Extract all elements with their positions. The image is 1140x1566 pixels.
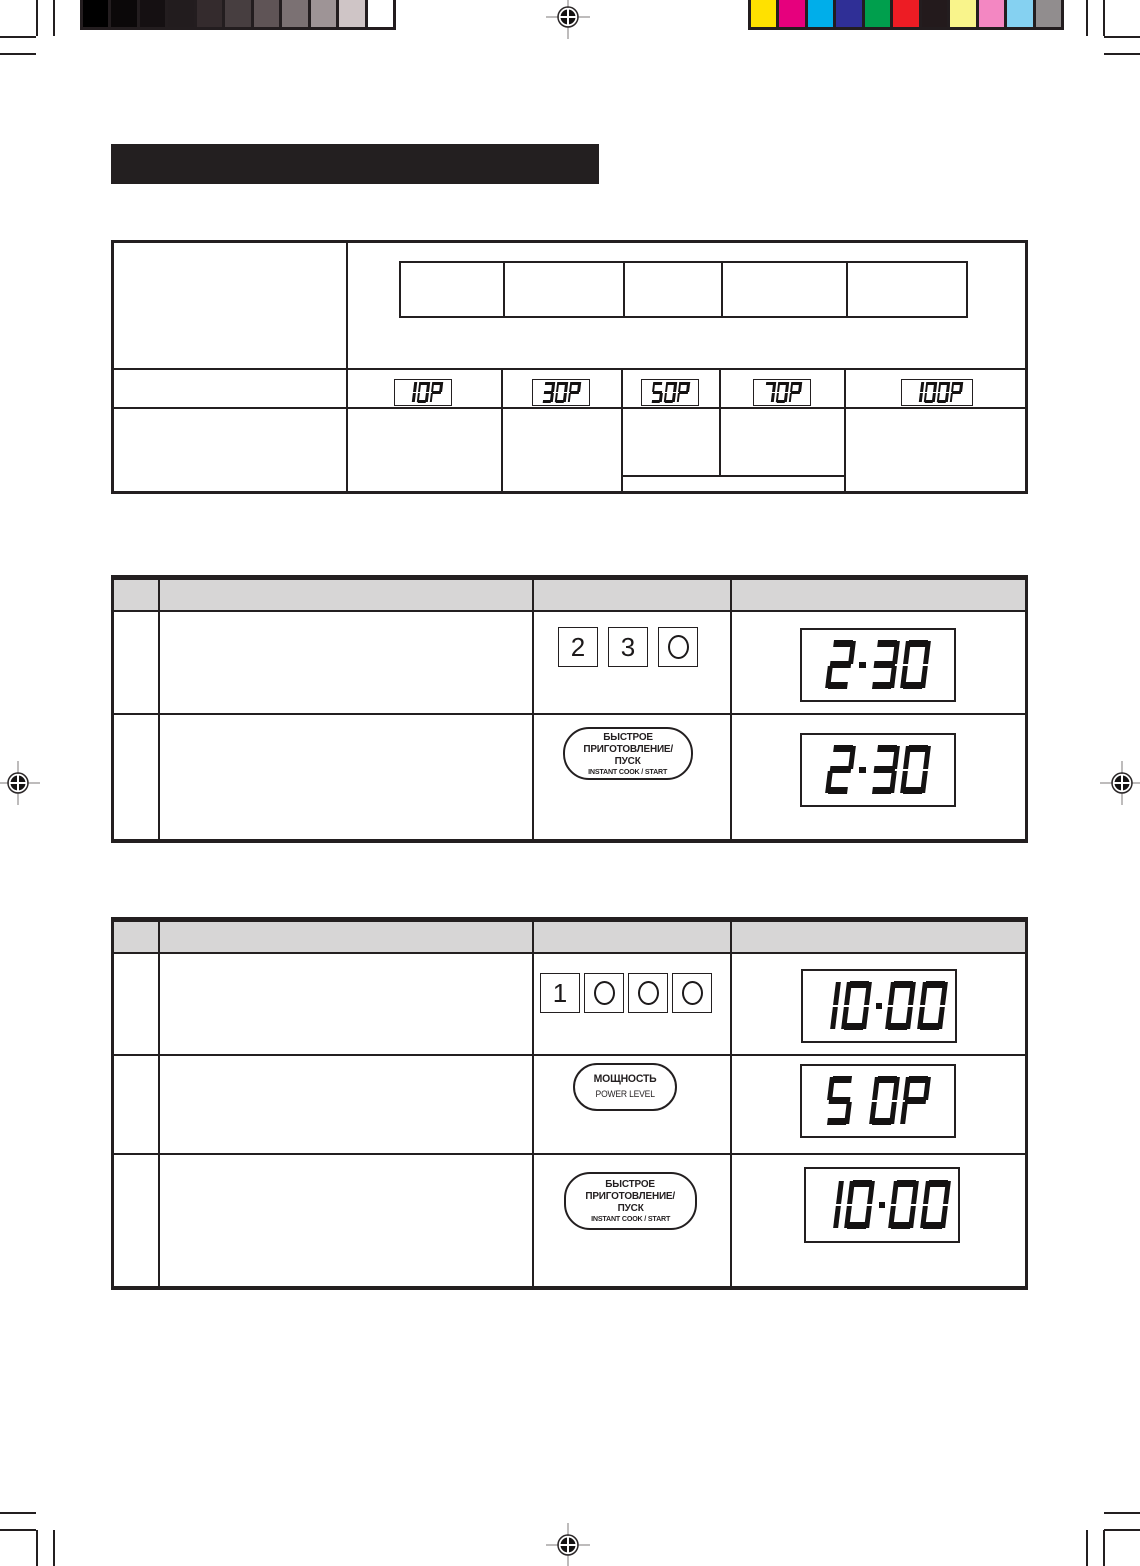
table-header-row bbox=[114, 580, 1025, 612]
led-display bbox=[813, 1180, 951, 1229]
led-display-box bbox=[801, 969, 957, 1043]
led-display-30p bbox=[541, 382, 580, 403]
button-label: ПУСК bbox=[618, 1202, 644, 1214]
calibration-swatch bbox=[979, 0, 1004, 27]
table-line bbox=[621, 368, 623, 491]
led-display-box bbox=[532, 379, 590, 406]
crop-mark bbox=[36, 1530, 38, 1566]
keypad-key-2: 2 bbox=[558, 627, 598, 667]
calibration-swatch bbox=[282, 0, 307, 27]
calibration-swatch bbox=[950, 0, 975, 27]
keypad-key-1: 1 bbox=[540, 973, 580, 1013]
keypad-key-3: 3 bbox=[608, 627, 648, 667]
led-display bbox=[810, 981, 948, 1030]
calibration-swatch bbox=[922, 0, 947, 27]
keypad-key-0 bbox=[628, 973, 668, 1013]
led-display-box bbox=[800, 628, 956, 702]
table-line bbox=[621, 475, 846, 477]
keypad-keys: 1 bbox=[540, 973, 712, 1013]
power-level-button: МОЩНОСТЬ POWER LEVEL bbox=[573, 1063, 677, 1111]
table-line bbox=[721, 263, 723, 316]
table-line bbox=[730, 922, 732, 1286]
zero-circle-glyph bbox=[638, 981, 659, 1005]
led-display-10p bbox=[403, 382, 442, 403]
led-display-box bbox=[753, 379, 811, 406]
button-label: INSTANT COOK / START bbox=[591, 1214, 670, 1224]
led-display-100p bbox=[911, 382, 963, 403]
crop-mark bbox=[1104, 1512, 1140, 1514]
crop-mark bbox=[53, 1530, 55, 1566]
calibration-swatch bbox=[83, 0, 108, 27]
table-line bbox=[158, 922, 160, 1286]
button-label: МОЩНОСТЬ bbox=[594, 1072, 657, 1087]
zero-circle-glyph bbox=[682, 981, 703, 1005]
calibration-swatch bbox=[893, 0, 918, 27]
button-label: ПРИГОТОВЛЕНИЕ/ bbox=[583, 743, 673, 755]
calibration-swatch bbox=[339, 0, 364, 27]
calibration-swatch bbox=[254, 0, 279, 27]
led-display-box bbox=[800, 1064, 956, 1138]
calibration-swatch bbox=[111, 0, 136, 27]
grayscale-calibration-bar bbox=[80, 0, 396, 30]
crop-mark bbox=[1086, 1530, 1088, 1566]
registration-mark-bottom bbox=[546, 1523, 590, 1566]
crop-mark bbox=[53, 0, 55, 36]
calibration-swatch bbox=[808, 0, 833, 27]
led-display bbox=[825, 745, 932, 794]
calibration-swatch bbox=[751, 0, 776, 27]
crop-mark bbox=[0, 53, 36, 55]
registration-mark-right bbox=[1100, 761, 1140, 805]
calibration-swatch bbox=[168, 0, 193, 27]
button-label: POWER LEVEL bbox=[595, 1087, 654, 1102]
table-line bbox=[844, 368, 846, 491]
table-line bbox=[158, 580, 160, 839]
table-line bbox=[114, 1054, 1025, 1056]
calibration-swatch bbox=[1036, 0, 1061, 27]
led-display-box bbox=[641, 379, 699, 406]
calibration-swatch bbox=[140, 0, 165, 27]
crop-mark bbox=[0, 36, 36, 38]
power-level-table bbox=[111, 240, 1028, 494]
keypad-key-0 bbox=[658, 627, 698, 667]
led-display bbox=[825, 640, 932, 689]
table-line bbox=[114, 1153, 1025, 1155]
table-line bbox=[114, 713, 1025, 715]
instant-cook-start-button: БЫСТРОЕ ПРИГОТОВЛЕНИЕ/ ПУСК INSTANT COOK… bbox=[564, 1172, 697, 1230]
power-header-box bbox=[399, 261, 968, 318]
crop-mark bbox=[36, 0, 38, 36]
crop-mark bbox=[1086, 0, 1088, 36]
crop-mark bbox=[0, 1512, 36, 1514]
keypad-keys: 2 3 bbox=[558, 627, 698, 667]
led-display-box bbox=[394, 379, 452, 406]
button-label: БЫСТРОЕ bbox=[603, 731, 653, 743]
zero-circle-glyph bbox=[668, 635, 689, 659]
table-line bbox=[719, 368, 721, 475]
led-display-50p bbox=[650, 382, 689, 403]
table-line bbox=[623, 263, 625, 316]
crop-mark bbox=[0, 1529, 36, 1531]
led-display-box bbox=[800, 733, 956, 807]
crop-mark bbox=[1103, 0, 1105, 36]
registration-mark-top bbox=[546, 0, 590, 39]
registration-mark-left bbox=[0, 761, 40, 805]
button-label: INSTANT COOK / START bbox=[588, 767, 667, 777]
steps-table-1: 2 3 БЫСТРОЕ ПРИГОТОВЛЕНИЕ/ ПУСК INSTANT … bbox=[111, 575, 1028, 843]
color-calibration-bar bbox=[748, 0, 1064, 30]
led-display bbox=[824, 1076, 931, 1125]
table-line bbox=[501, 368, 503, 491]
table-line bbox=[503, 263, 505, 316]
button-label: ПУСК bbox=[615, 755, 641, 767]
crop-mark bbox=[1103, 1530, 1105, 1566]
calibration-swatch bbox=[225, 0, 250, 27]
button-label: ПРИГОТОВЛЕНИЕ/ bbox=[586, 1190, 676, 1202]
table-line bbox=[532, 922, 534, 1286]
calibration-swatch bbox=[197, 0, 222, 27]
calibration-swatch bbox=[311, 0, 336, 27]
table-line bbox=[730, 580, 732, 839]
table-line bbox=[846, 263, 848, 316]
zero-circle-glyph bbox=[594, 981, 615, 1005]
manual-page: 2 3 БЫСТРОЕ ПРИГОТОВЛЕНИЕ/ ПУСК INSTANT … bbox=[0, 0, 1140, 1566]
steps-table-2: 1 МОЩНОСТЬ POWER LEVEL БЫСТРОЕ ПРИГОТОВЛ… bbox=[111, 917, 1028, 1290]
table-header-row bbox=[114, 922, 1025, 954]
table-line bbox=[114, 407, 1025, 409]
calibration-swatch bbox=[1007, 0, 1032, 27]
led-display-70p bbox=[762, 382, 801, 403]
keypad-key-0 bbox=[584, 973, 624, 1013]
led-display-box bbox=[901, 379, 973, 406]
calibration-swatch bbox=[836, 0, 861, 27]
table-line bbox=[346, 243, 348, 491]
keypad-key-0 bbox=[672, 973, 712, 1013]
instant-cook-start-button: БЫСТРОЕ ПРИГОТОВЛЕНИЕ/ ПУСК INSTANT COOK… bbox=[563, 727, 693, 780]
section-title-bar bbox=[111, 144, 599, 184]
led-display-box bbox=[804, 1167, 960, 1243]
crop-mark bbox=[1104, 53, 1140, 55]
crop-mark bbox=[1104, 36, 1140, 38]
calibration-swatch bbox=[865, 0, 890, 27]
table-line bbox=[114, 368, 1025, 370]
calibration-swatch bbox=[368, 0, 393, 27]
button-label: БЫСТРОЕ bbox=[606, 1178, 656, 1190]
calibration-swatch bbox=[779, 0, 804, 27]
crop-mark bbox=[1104, 1529, 1140, 1531]
table-line bbox=[532, 580, 534, 839]
